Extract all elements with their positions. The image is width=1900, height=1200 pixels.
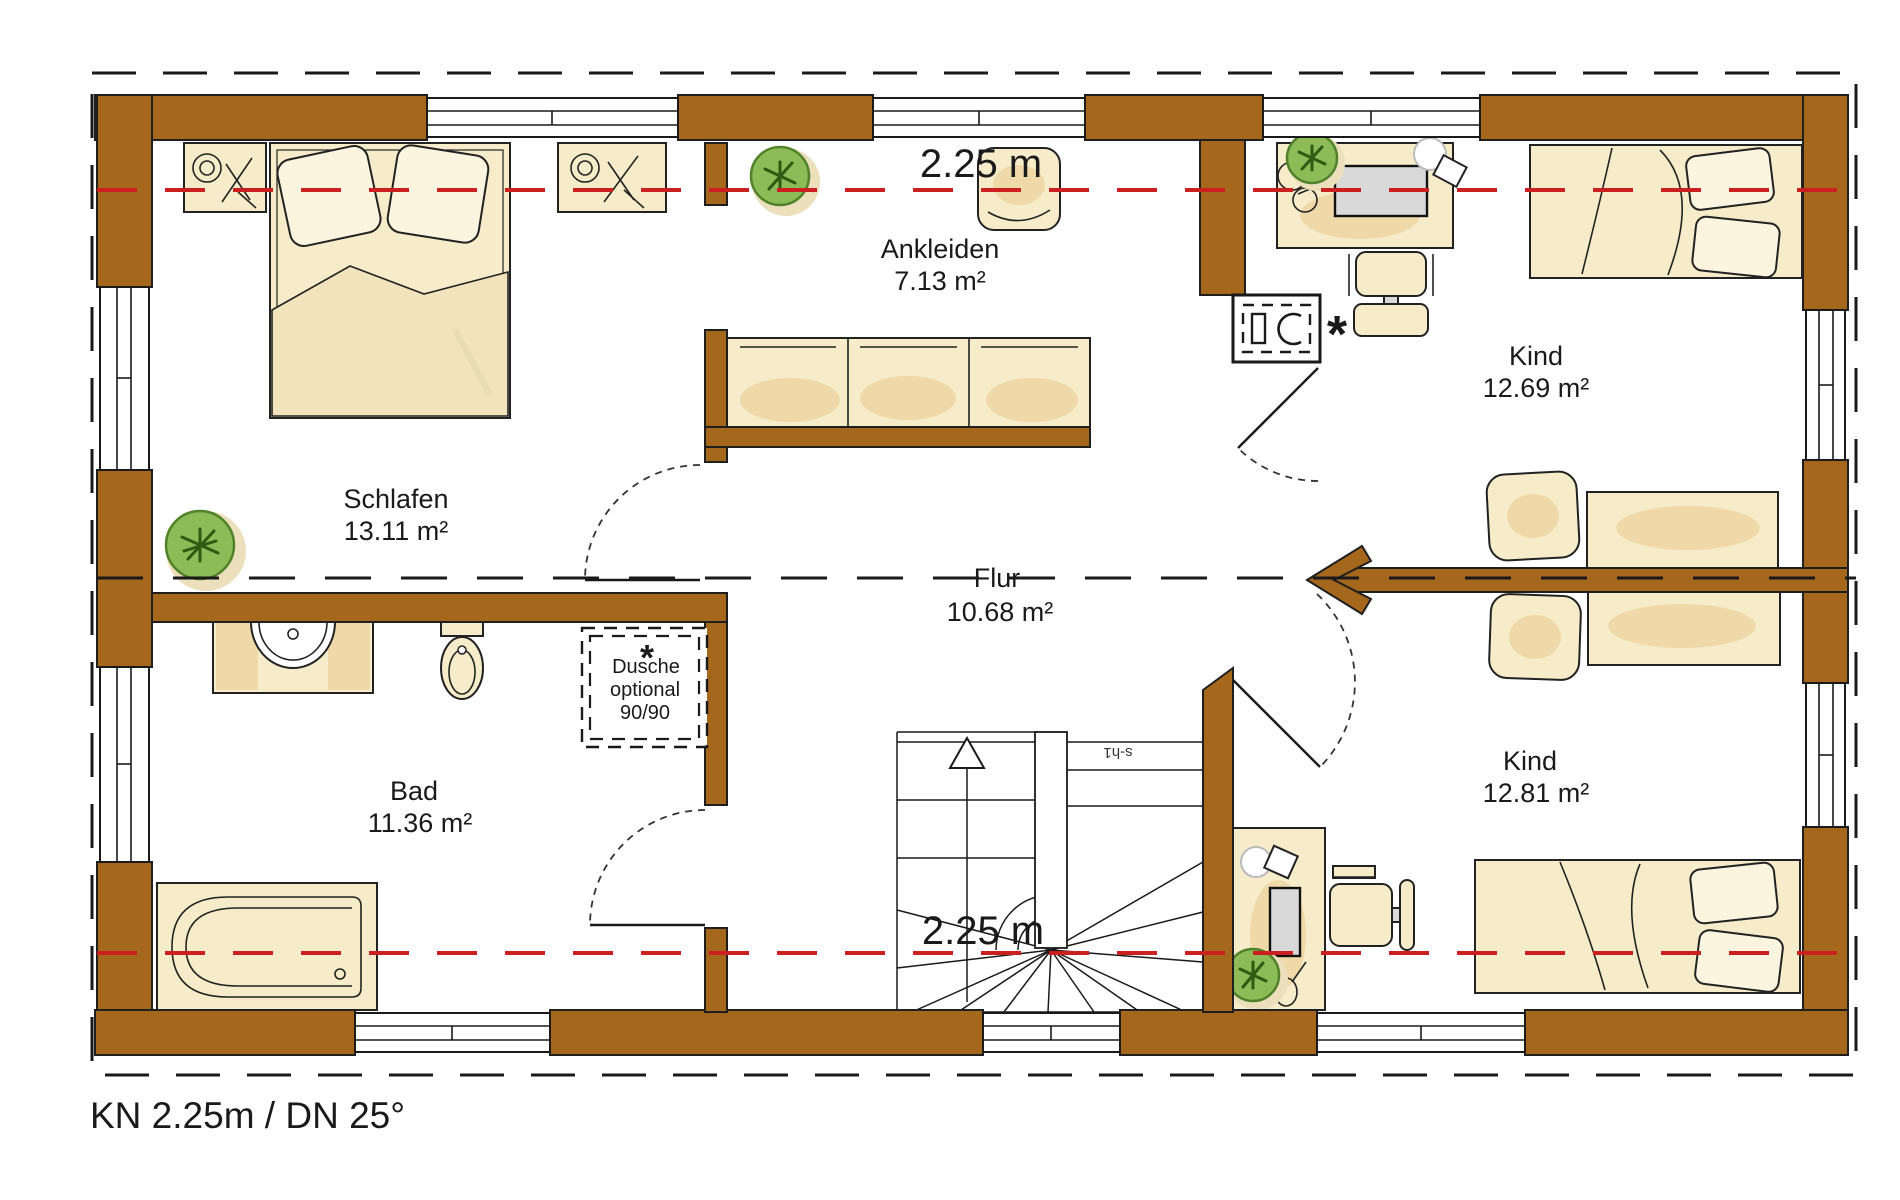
wall-segment — [1085, 95, 1263, 140]
window — [1317, 1013, 1525, 1052]
window — [1806, 310, 1845, 460]
double-bed — [270, 143, 510, 418]
chimney-footnote-marker: * — [1327, 306, 1348, 364]
room-area-kind-top: 12.69 m² — [1483, 373, 1590, 403]
window — [983, 1013, 1120, 1052]
toilet — [441, 620, 483, 699]
floorplan-page: s-h1 — [0, 0, 1900, 1200]
wall-segment — [705, 622, 727, 805]
chair-kind-bottom-inner — [1489, 593, 1582, 680]
room-area-ankleiden: 7.13 m² — [894, 266, 986, 296]
office-chair-kind-bottom — [1330, 866, 1414, 950]
nightstand-left — [184, 143, 266, 212]
window — [427, 98, 678, 137]
room-label-kind-top: Kind — [1509, 341, 1563, 371]
wall-segment — [95, 1010, 355, 1055]
window — [873, 98, 1085, 137]
wall-segment — [705, 143, 727, 205]
room-area-flur: 10.68 m² — [947, 597, 1054, 627]
room-area-schlafen: 13.11 m² — [344, 516, 449, 546]
stair-code-label: s-h1 — [1103, 744, 1132, 761]
wall-segment — [1120, 1010, 1317, 1055]
shower-note-line1: Dusche — [612, 656, 680, 678]
shower-note-text: Dusche optional 90/90 — [610, 656, 680, 724]
wall-segment — [705, 427, 1090, 447]
dimension-label-bottom: 2.25 m — [922, 909, 1044, 953]
shower-note-line2: optional — [610, 679, 680, 701]
wall-segment — [1480, 95, 1848, 140]
bed-kind-top — [1530, 145, 1802, 278]
room-label-schlafen: Schlafen — [343, 484, 448, 514]
chimney-symbol — [1233, 295, 1320, 362]
plant-icon — [751, 147, 820, 216]
room-label-bad: Bad — [390, 776, 438, 806]
window — [100, 287, 149, 470]
desk-kind-top-inner — [1587, 492, 1778, 568]
desk-kind-bottom-inner — [1588, 592, 1780, 665]
washbasin-vanity — [213, 620, 373, 693]
room-label-flur: Flur — [974, 563, 1021, 593]
room-area-bad: 11.36 m² — [368, 808, 473, 838]
stair-direction-arrow — [950, 738, 984, 1002]
dimension-label-top: 2.25 m — [920, 142, 1042, 186]
bed-kind-bottom — [1475, 860, 1800, 993]
wall-segment — [1332, 568, 1848, 592]
wall-segment — [97, 470, 152, 667]
door-kind-bottom — [1233, 594, 1355, 767]
door-schlafen — [585, 465, 700, 580]
wall-segment — [1200, 140, 1245, 295]
room-label-ankleiden: Ankleiden — [881, 234, 1000, 264]
wardrobe — [727, 338, 1090, 427]
door-bad — [590, 810, 705, 925]
window — [1263, 98, 1480, 137]
bathtub — [157, 883, 377, 1010]
chair-kind-top-inner — [1486, 471, 1580, 562]
wall-segment — [1525, 1010, 1848, 1055]
wall-segment — [152, 593, 727, 622]
plan-caption: KN 2.25m / DN 25° — [90, 1095, 405, 1136]
window — [355, 1013, 550, 1052]
floorplan-svg: s-h1 — [0, 0, 1900, 1200]
wall-segment — [678, 95, 873, 140]
wall-segment — [1203, 668, 1233, 1012]
room-area-kind-bottom: 12.81 m² — [1483, 778, 1590, 808]
window — [100, 667, 149, 862]
wall-segment — [550, 1010, 983, 1055]
wall-segment — [1803, 95, 1848, 310]
window — [1806, 683, 1845, 827]
staircase: s-h1 — [897, 732, 1203, 1012]
wall-segment — [705, 928, 727, 1012]
shower-note-line3: 90/90 — [620, 702, 670, 724]
room-label-kind-bottom: Kind — [1503, 746, 1557, 776]
door-kind-top — [1238, 368, 1318, 481]
office-chair-kind-top — [1349, 252, 1433, 336]
nightstand-right — [558, 143, 666, 212]
